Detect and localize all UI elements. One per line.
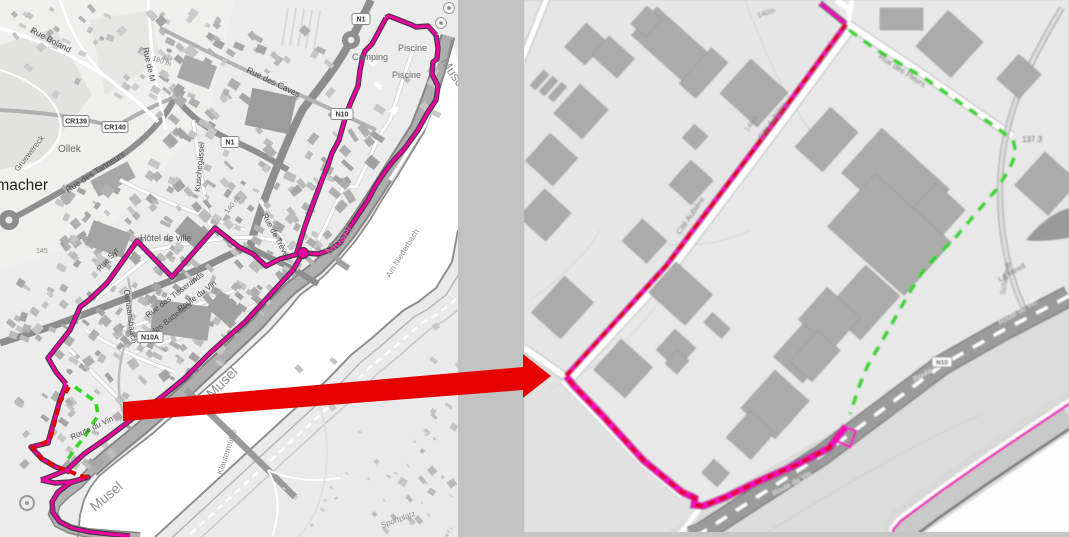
svg-text:137.3: 137.3 xyxy=(1022,135,1043,144)
svg-text:Ollek: Ollek xyxy=(58,144,82,155)
svg-text:CR139: CR139 xyxy=(65,119,87,126)
svg-text:145: 145 xyxy=(36,248,48,255)
svg-text:N10: N10 xyxy=(936,360,948,367)
svg-text:Camping: Camping xyxy=(352,52,388,62)
svg-text:CR140: CR140 xyxy=(104,125,126,132)
svg-text:N1: N1 xyxy=(357,17,366,24)
svg-text:Piscine: Piscine xyxy=(398,43,427,53)
svg-text:Hôtel de ville: Hôtel de ville xyxy=(140,233,192,243)
svg-text:N10: N10 xyxy=(336,112,349,119)
svg-text:N1: N1 xyxy=(226,140,235,147)
svg-text:Piscine: Piscine xyxy=(392,70,421,80)
svg-text:N10A: N10A xyxy=(141,335,159,342)
svg-text:Grevenmacher: Grevenmacher xyxy=(0,177,48,194)
